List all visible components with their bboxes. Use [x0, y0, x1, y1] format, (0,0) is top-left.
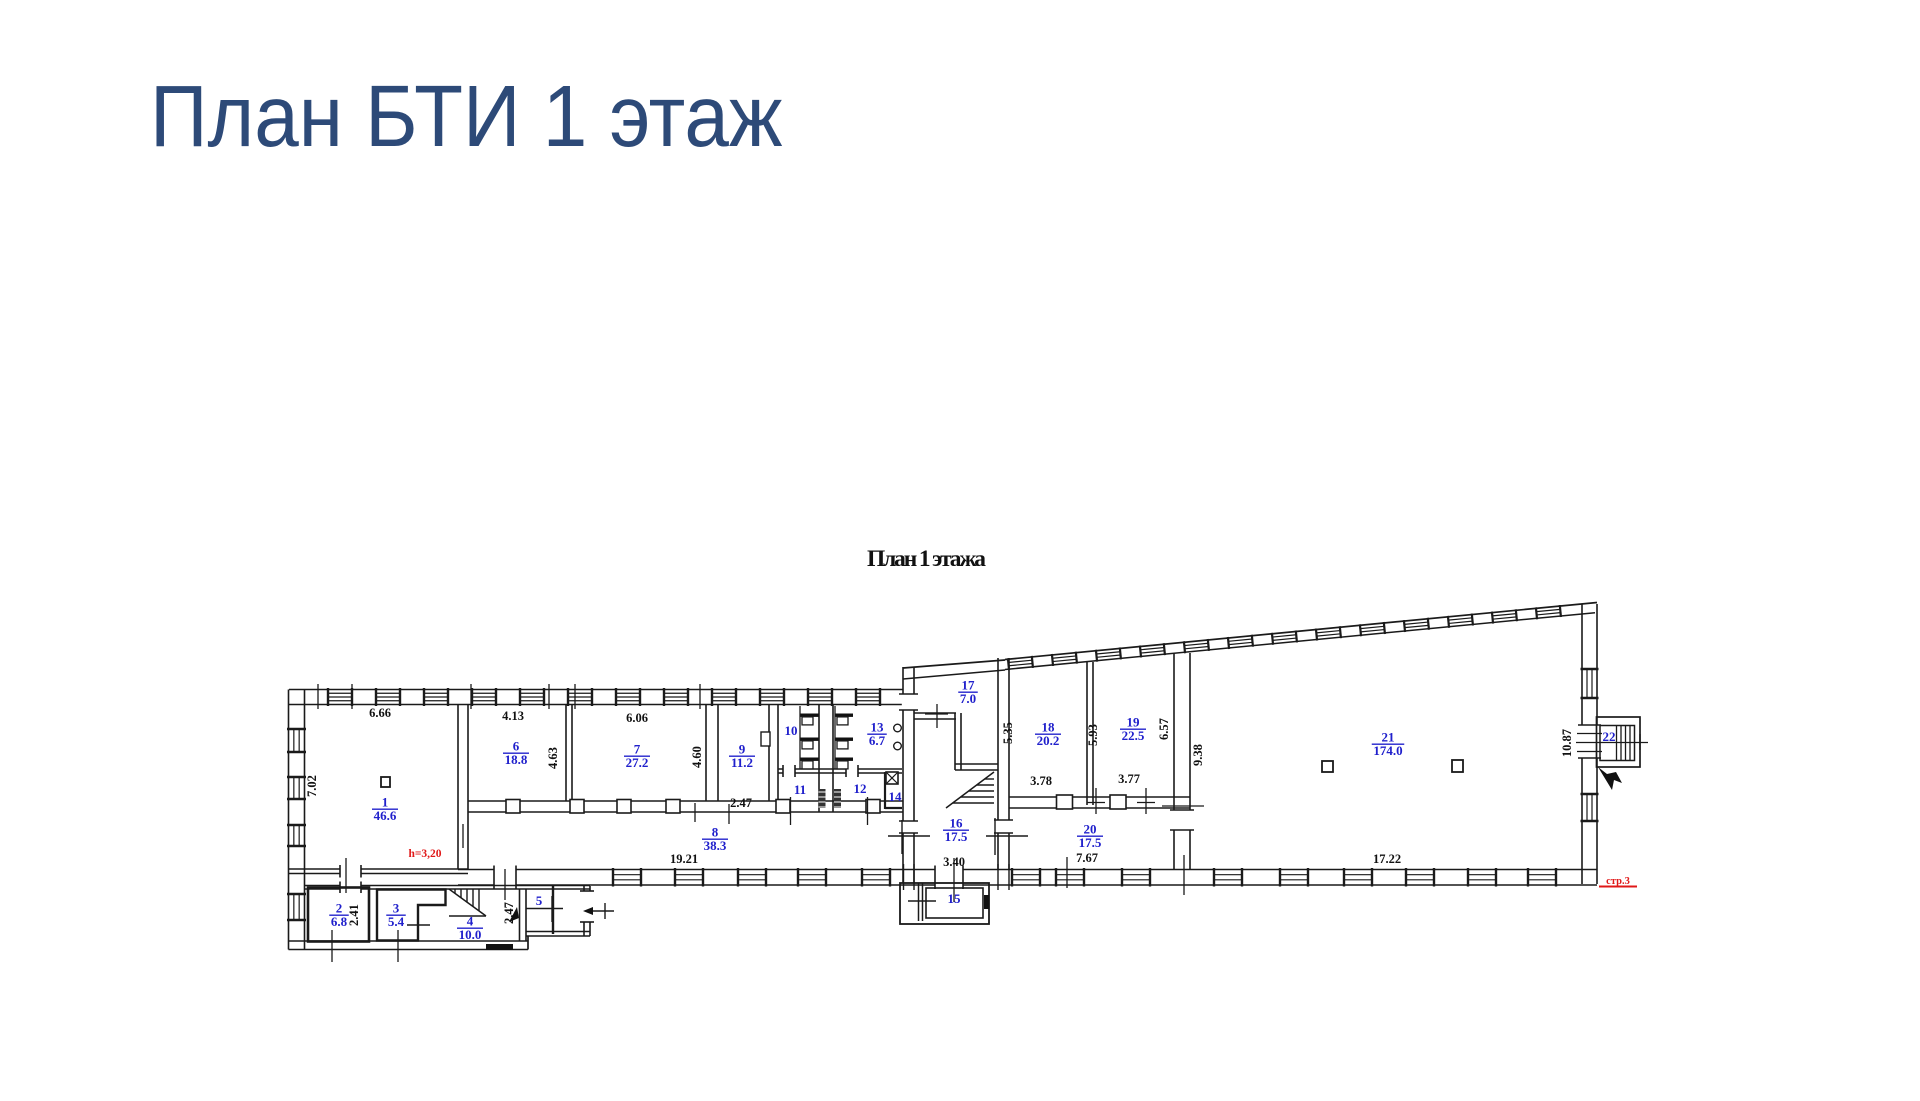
svg-text:6.66: 6.66	[369, 706, 391, 720]
svg-text:18.8: 18.8	[505, 752, 528, 767]
svg-text:38.3: 38.3	[704, 838, 727, 853]
svg-text:19.21: 19.21	[670, 852, 698, 866]
svg-text:14: 14	[889, 789, 903, 804]
svg-text:h=3,20: h=3,20	[408, 848, 441, 860]
svg-text:5: 5	[536, 893, 543, 908]
svg-text:10.0: 10.0	[459, 927, 482, 942]
svg-text:22: 22	[1603, 729, 1616, 744]
svg-text:7.02: 7.02	[305, 775, 319, 797]
svg-text:17.5: 17.5	[945, 829, 968, 844]
svg-text:11.2: 11.2	[731, 755, 753, 770]
svg-text:2.47: 2.47	[730, 796, 752, 810]
svg-text:27.2: 27.2	[626, 755, 649, 770]
svg-text:4.63: 4.63	[546, 747, 560, 769]
svg-text:15: 15	[948, 891, 962, 906]
svg-text:12: 12	[854, 781, 867, 796]
svg-text:4.60: 4.60	[690, 746, 704, 768]
svg-text:5.4: 5.4	[388, 914, 405, 929]
svg-text:2.47: 2.47	[502, 902, 516, 924]
svg-text:5.35: 5.35	[1001, 722, 1015, 744]
svg-text:22.5: 22.5	[1122, 728, 1145, 743]
svg-text:46.6: 46.6	[374, 808, 397, 823]
svg-text:10: 10	[785, 723, 798, 738]
svg-text:стр.3: стр.3	[1606, 876, 1630, 887]
svg-text:3.77: 3.77	[1118, 772, 1140, 786]
svg-text:3.40: 3.40	[943, 855, 965, 869]
svg-text:6.06: 6.06	[626, 711, 648, 725]
svg-text:11: 11	[794, 782, 806, 797]
svg-text:10.87: 10.87	[1560, 729, 1574, 757]
svg-text:6.7: 6.7	[869, 733, 886, 748]
svg-text:План 1 этажа: План 1 этажа	[867, 546, 986, 572]
svg-text:17.22: 17.22	[1373, 852, 1401, 866]
svg-text:7.67: 7.67	[1076, 851, 1098, 865]
svg-text:2.41: 2.41	[347, 904, 361, 926]
svg-text:17.5: 17.5	[1079, 835, 1102, 850]
svg-text:174.0: 174.0	[1373, 743, 1402, 758]
svg-text:6.57: 6.57	[1157, 718, 1171, 740]
svg-text:6.8: 6.8	[331, 914, 348, 929]
svg-text:3.78: 3.78	[1030, 774, 1052, 788]
svg-text:4.13: 4.13	[502, 709, 524, 723]
svg-text:5.93: 5.93	[1086, 724, 1100, 746]
svg-text:9.38: 9.38	[1191, 744, 1205, 766]
svg-text:7.0: 7.0	[960, 691, 976, 706]
svg-text:20.2: 20.2	[1037, 733, 1060, 748]
